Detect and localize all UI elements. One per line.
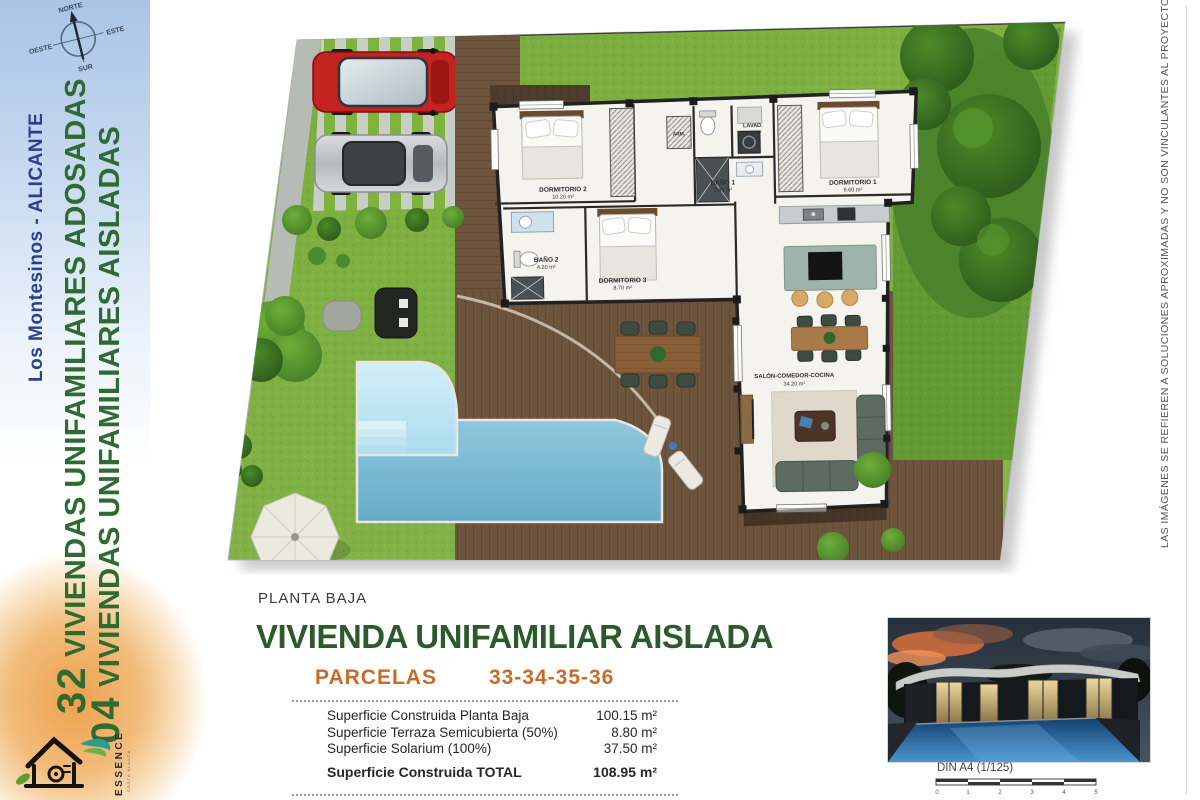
room-label: DORMITORIO 3 (599, 277, 647, 285)
pool-steps (358, 421, 406, 453)
svg-text:4: 4 (1062, 790, 1066, 796)
location-label: Los Montesinos - ALICANTE (26, 113, 48, 382)
room-label: ARM. (673, 131, 685, 137)
compass-south-label: SUR (78, 63, 94, 72)
svg-text:10.20 m²: 10.20 m² (552, 194, 574, 200)
svg-text:4.20 m²: 4.20 m² (537, 265, 556, 271)
bed-dormitorio-2 (520, 110, 585, 179)
room-label: DORMITORIO 1 (829, 179, 877, 187)
divider (292, 794, 678, 796)
compass-north-label: NORTE (58, 2, 84, 15)
svg-text:9.60 m²: 9.60 m² (844, 187, 863, 193)
logo-tagline-text: COSTA BLANCA (126, 750, 131, 792)
site-plan: DORMITORIO 2 10.20 m² BAÑO 1 3.80 m² LAV… (225, 8, 1085, 574)
disclaimer-text: LAS IMÁGENES SE REFIEREN A SOLUCIONES AP… (1159, 0, 1171, 548)
svg-text:0: 0 (935, 790, 939, 796)
bed-dormitorio-3 (597, 208, 658, 281)
page-title: VIVIENDA UNIFAMILIAR AISLADA (256, 618, 773, 656)
house-render-photo (888, 618, 1150, 762)
divider (292, 700, 678, 702)
svg-text:5: 5 (1094, 790, 1098, 796)
red-car (313, 48, 457, 116)
closet (610, 108, 636, 196)
table-row: Superficie Terraza Semicubierta (50%) 8.… (327, 725, 657, 742)
sofa (776, 460, 859, 491)
table-total-row: Superficie Construida TOTAL 108.95 m² (327, 764, 657, 781)
garden-bench (375, 288, 417, 338)
floor-label: PLANTA BAJA (258, 590, 367, 607)
sheet-border-right (1186, 6, 1187, 794)
compass-west-label: OESTE (28, 44, 53, 57)
bed-dormitorio-1 (817, 101, 880, 178)
project-line-aisladas: 04 VIVIENDAS UNIFAMILIARES AISLADAS (84, 126, 129, 744)
parcels-label: PARCELAS (315, 666, 437, 690)
logo-swoosh-green (82, 748, 106, 757)
parcels-row: PARCELAS 33-34-35-36 (315, 666, 614, 690)
svg-text:8.70 m²: 8.70 m² (613, 285, 632, 291)
svg-text:2.00 m²: 2.00 m² (744, 130, 761, 136)
svg-text:2: 2 (998, 790, 1002, 796)
scale-label: DIN A4 (1/125) (937, 762, 1013, 774)
room-label: LAVAD. (743, 123, 763, 129)
room-label: BAÑO 1 (710, 177, 735, 186)
surface-table: Superficie Construida Planta Baja 100.15… (327, 708, 657, 780)
outdoor-dining-set (615, 321, 701, 388)
indoor-dining-set (791, 314, 868, 362)
room-label: BAÑO 2 (534, 255, 559, 264)
svg-text:1: 1 (966, 790, 970, 796)
plan-sheet: { "document": { "floor_label": "PLANTA B… (0, 0, 1200, 800)
svg-text:3.80 m²: 3.80 m² (714, 188, 733, 194)
essence-logo: ESSENCE COSTA BLANCA (12, 726, 132, 798)
parcels-numbers: 33-34-35-36 (489, 666, 614, 690)
stone-table (323, 301, 361, 331)
svg-text:34.20 m²: 34.20 m² (783, 381, 805, 387)
table-row: Superficie Construida Planta Baja 100.15… (327, 708, 657, 725)
compass-icon: NORTE ESTE OESTE SUR (28, 2, 128, 72)
gray-car (315, 132, 447, 195)
svg-text:3: 3 (1030, 790, 1034, 796)
deck-bush (855, 452, 891, 488)
room-label: DORMITORIO 2 (539, 186, 587, 194)
compass-east-label: ESTE (106, 26, 126, 37)
logo-house-icon (26, 740, 82, 786)
closet (777, 105, 802, 191)
logo-brand-text: ESSENCE (114, 731, 125, 796)
scale-bar: 0 1 2 3 4 5 (935, 777, 1107, 797)
table-row: Superficie Solarium (100%) 37.50 m² (327, 741, 657, 758)
